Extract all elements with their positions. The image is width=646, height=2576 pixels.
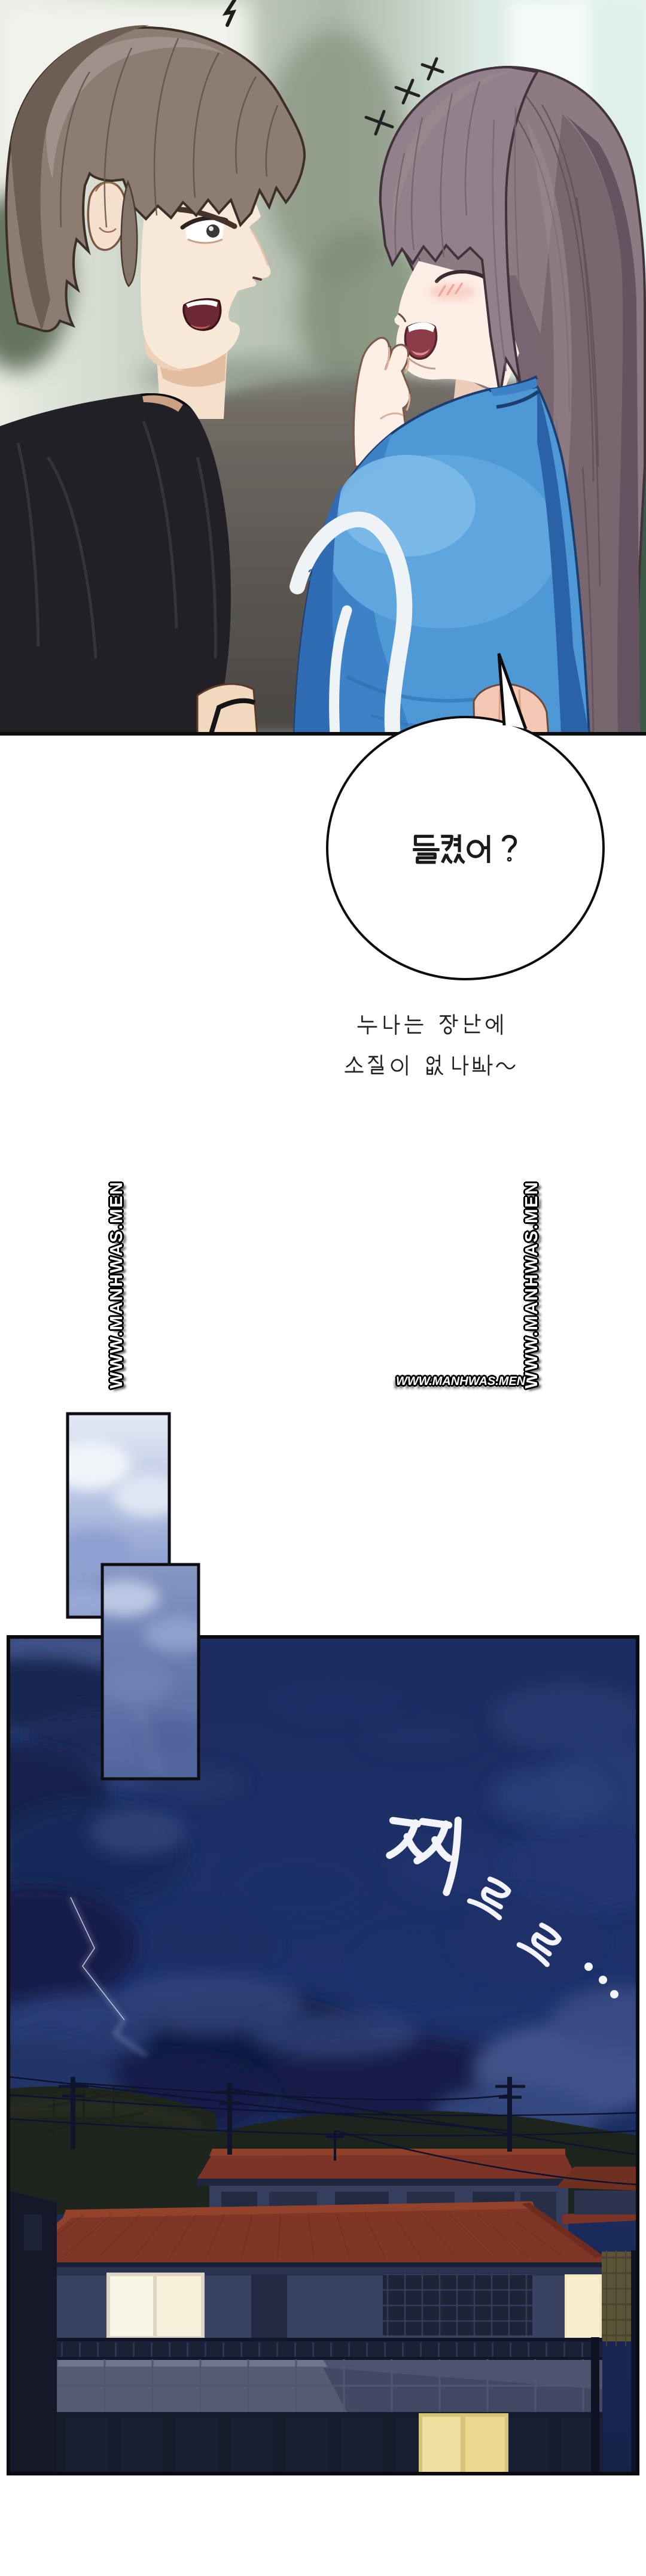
svg-text:WWW.MANHWAS.MEN: WWW.MANHWAS.MEN [107,1181,126,1389]
svg-text:WWW.MANHWAS.MEN: WWW.MANHWAS.MEN [396,1375,526,1388]
svg-text:WWW.MANHWAS.MEN: WWW.MANHWAS.MEN [522,1181,541,1389]
svg-text:2: 2 [307,566,317,584]
